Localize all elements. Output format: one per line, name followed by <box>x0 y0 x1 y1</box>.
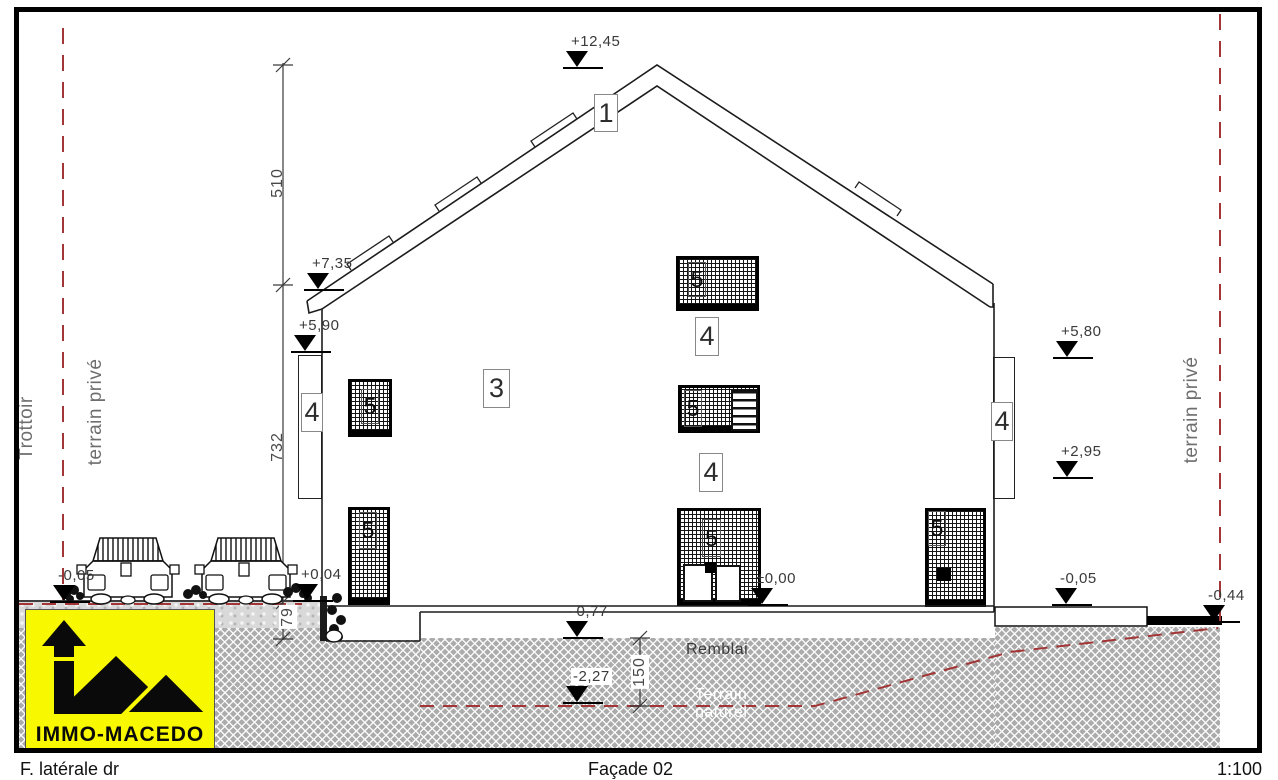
tag-opening-right: 5 <box>928 511 946 546</box>
window-detail-block <box>937 568 951 581</box>
sidewalk-right <box>995 607 1147 626</box>
level-line <box>563 702 603 704</box>
elevation-value: -0,05 <box>58 567 95 584</box>
sheet-title: Façade 02 <box>588 759 673 780</box>
tag-railing-mid-upper: 4 <box>695 317 719 356</box>
label-terrain-naturel-line1: Terrain <box>695 686 747 704</box>
dimension-roof-height: 510 <box>269 168 287 198</box>
roof-snow-guards <box>347 113 901 270</box>
label-terrain-naturel-line2: naturel <box>695 704 747 722</box>
logo-text: IMMO-MACEDO <box>36 723 204 746</box>
tag-opening-mid-middle: 5 <box>684 390 702 427</box>
level-triangle-icon <box>1055 588 1077 604</box>
roof-outline <box>307 65 993 313</box>
tag-roof: 1 <box>594 94 618 132</box>
level-line <box>1200 621 1240 623</box>
level-line <box>748 604 788 606</box>
label-terrain-prive-right: terrain privé <box>1181 357 1203 464</box>
tag-roof-label: 1 <box>598 98 613 129</box>
tag-opening-label: 5 <box>362 517 375 544</box>
scale-value: 1:100 <box>1217 759 1262 780</box>
door-hardware-block <box>705 562 716 573</box>
level-triangle-icon <box>296 584 318 600</box>
level-triangle-icon <box>1203 605 1225 621</box>
dimension-fill-depth: 150 <box>631 655 649 689</box>
tag-railing-label: 4 <box>304 397 319 428</box>
elevation-value: +12,45 <box>571 33 620 50</box>
elevation-value: -0,05 <box>1060 570 1097 587</box>
tag-facade-label: 3 <box>489 373 504 404</box>
elevation-value: ±0,00 <box>756 570 796 587</box>
level-triangle-icon <box>566 621 588 637</box>
level-line <box>291 351 331 353</box>
elevation-drawing-sheet: 1 3 4 4 4 4 5 5 5 5 5 5 +12,45 +7,35 +5,… <box>0 0 1278 780</box>
level-line <box>1052 604 1092 606</box>
label-terrain-prive-left: terrain privé <box>85 359 107 466</box>
level-line <box>1053 357 1093 359</box>
vent-grille <box>731 389 758 431</box>
elevation-value: +5,80 <box>1061 323 1101 340</box>
wall-outline <box>322 303 994 641</box>
tag-railing-label: 4 <box>699 321 714 352</box>
level-line <box>50 601 90 603</box>
car-right <box>195 538 297 604</box>
door-panel-right <box>715 565 741 602</box>
dimension-facade-height: 732 <box>269 432 287 462</box>
elevation-value: +5,90 <box>299 317 339 334</box>
elevation-value: +0,04 <box>301 566 341 583</box>
tag-opening-mid-door: 5 <box>702 519 721 557</box>
elevation-value: +2,95 <box>1061 443 1101 460</box>
logo-house-icon: IMMO-MACEDO <box>26 610 214 750</box>
tag-opening-left-door: 5 <box>359 512 377 549</box>
elevation-value: +7,35 <box>312 255 352 272</box>
elevation-value: -0,44 <box>1208 587 1245 604</box>
tag-opening-label: 5 <box>705 525 718 552</box>
level-triangle-icon <box>294 335 316 351</box>
company-logo: IMMO-MACEDO <box>25 609 215 751</box>
tag-opening-mid-top: 5 <box>688 262 706 297</box>
tag-facade: 3 <box>483 369 510 408</box>
level-triangle-icon <box>566 686 588 702</box>
level-line <box>563 67 603 69</box>
tag-opening-left-upper: 5 <box>361 389 379 424</box>
level-triangle-icon <box>566 51 588 67</box>
elevation-value: -0,77 <box>571 603 608 620</box>
tag-railing-left: 4 <box>301 393 323 432</box>
tag-railing-mid-lower: 4 <box>699 453 723 492</box>
level-triangle-icon <box>307 273 329 289</box>
tag-opening-label: 5 <box>691 266 704 293</box>
tag-railing-label: 4 <box>994 406 1009 437</box>
tag-opening-label: 5 <box>364 393 377 420</box>
level-triangle-icon <box>53 585 75 601</box>
property-limit-lines <box>63 14 1220 621</box>
level-triangle-icon <box>1056 341 1078 357</box>
level-line <box>1053 477 1093 479</box>
label-trottoir: Trottoir <box>16 396 38 459</box>
elevation-value: -2,27 <box>571 668 612 685</box>
level-triangle-icon <box>751 588 773 604</box>
tag-opening-label: 5 <box>687 395 700 422</box>
view-title: F. latérale dr <box>20 759 119 780</box>
level-triangle-icon <box>1056 461 1078 477</box>
tag-railing-right: 4 <box>991 402 1013 441</box>
label-remblai: Remblai <box>686 641 748 659</box>
dimension-plinth-height: 79 <box>279 605 297 629</box>
tag-opening-label: 5 <box>931 515 944 542</box>
level-line <box>304 289 344 291</box>
level-line <box>293 600 333 602</box>
level-line <box>563 637 603 639</box>
tag-railing-label: 4 <box>703 457 718 488</box>
